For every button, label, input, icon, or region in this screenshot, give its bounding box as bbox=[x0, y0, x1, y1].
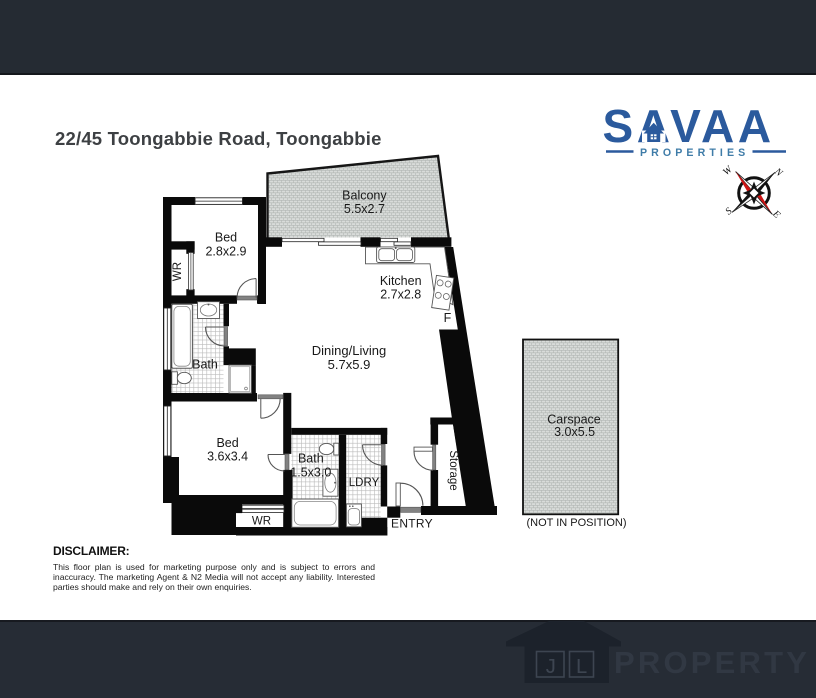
svg-text:2.7x2.8: 2.7x2.8 bbox=[380, 288, 421, 302]
svg-text:Dining/Living: Dining/Living bbox=[312, 343, 386, 358]
svg-text:5.5x2.7: 5.5x2.7 bbox=[344, 202, 385, 216]
svg-text:Bed: Bed bbox=[215, 231, 237, 245]
svg-text:5.7x5.9: 5.7x5.9 bbox=[328, 357, 371, 372]
svg-text:Storage: Storage bbox=[447, 450, 459, 490]
svg-text:Bath: Bath bbox=[192, 357, 218, 371]
svg-text:ENTRY: ENTRY bbox=[391, 516, 433, 530]
svg-text:PROPERTIES: PROPERTIES bbox=[640, 147, 749, 159]
svg-text:Bath: Bath bbox=[298, 451, 324, 465]
svg-text:W: W bbox=[721, 163, 736, 178]
svg-text:F: F bbox=[444, 311, 452, 325]
svg-text:N: N bbox=[771, 166, 785, 180]
svg-text:E: E bbox=[769, 208, 782, 221]
svg-text:(NOT IN POSITION): (NOT IN POSITION) bbox=[526, 517, 626, 529]
svg-text:WR: WR bbox=[172, 262, 184, 281]
svg-text:Kitchen: Kitchen bbox=[380, 274, 422, 288]
svg-text:LDRY: LDRY bbox=[349, 477, 380, 489]
svg-text:J: J bbox=[544, 657, 557, 680]
svg-text:PROPERTY: PROPERTY bbox=[614, 645, 810, 680]
svg-text:2.8x2.9: 2.8x2.9 bbox=[205, 245, 246, 259]
svg-text:SAVAA: SAVAA bbox=[603, 100, 775, 152]
svg-text:L: L bbox=[575, 657, 588, 680]
svg-text:Bed: Bed bbox=[216, 436, 238, 450]
svg-text:WR: WR bbox=[252, 516, 271, 528]
svg-text:3.0x5.5: 3.0x5.5 bbox=[554, 425, 595, 439]
svg-text:Balcony: Balcony bbox=[342, 189, 387, 203]
svg-text:3.6x3.4: 3.6x3.4 bbox=[207, 450, 248, 464]
svg-text:1.5x3.0: 1.5x3.0 bbox=[290, 466, 331, 480]
